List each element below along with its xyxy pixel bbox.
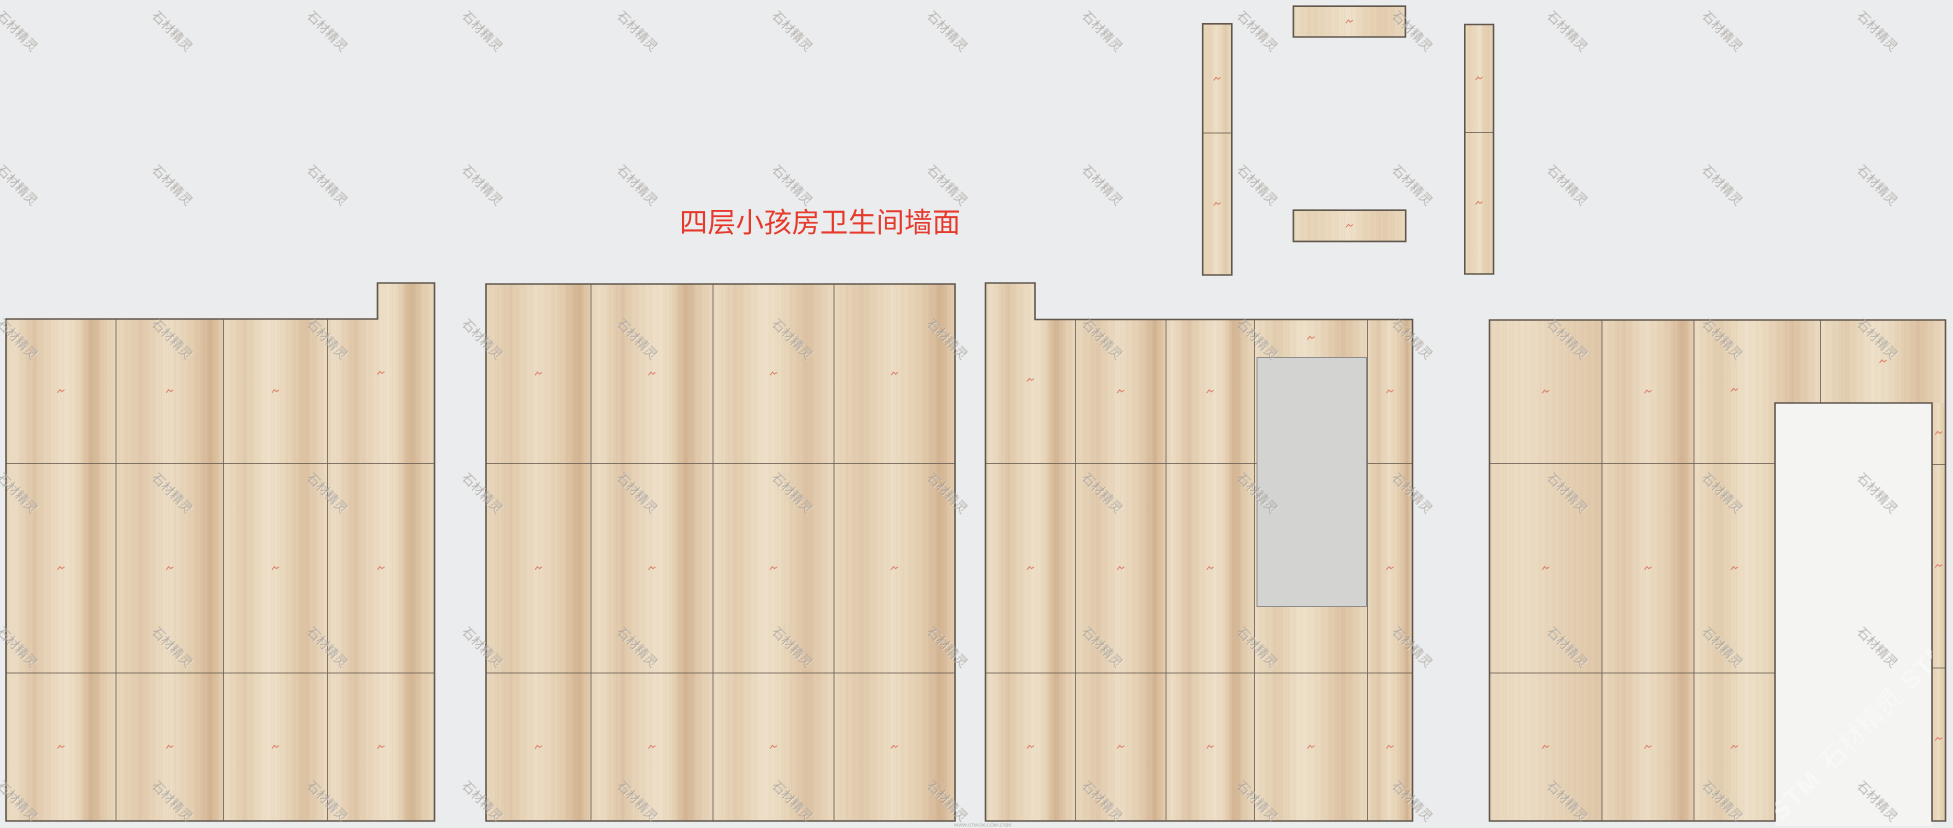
svg-text:WWW.STM-5I6.COM-17@6: WWW.STM-5I6.COM-17@6 (954, 822, 1012, 827)
